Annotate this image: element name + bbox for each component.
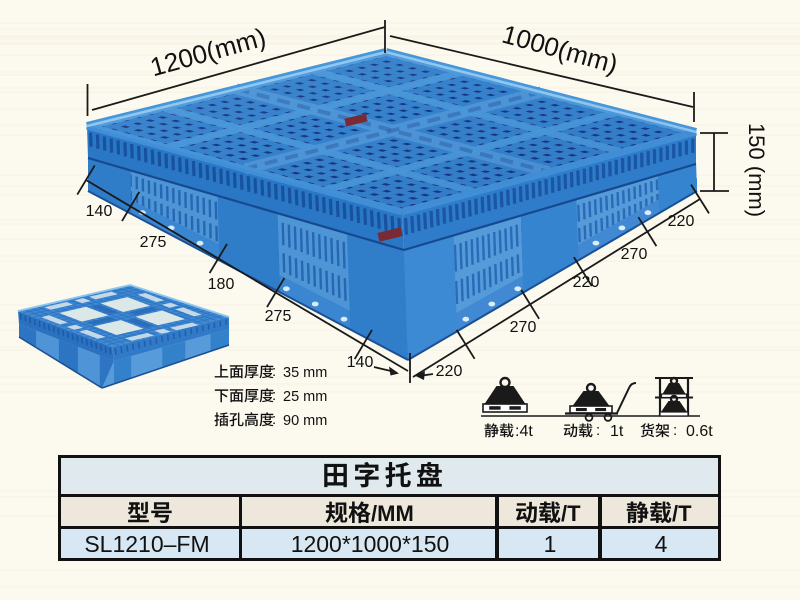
svg-text:275: 275: [140, 234, 167, 251]
svg-text:1200*1000*150: 1200*1000*150: [291, 531, 450, 557]
svg-text:4: 4: [655, 531, 668, 557]
svg-text:/T: /T: [561, 501, 581, 526]
svg-text:25 mm: 25 mm: [283, 389, 327, 405]
svg-text:90 mm: 90 mm: [283, 413, 327, 429]
svg-text:180: 180: [208, 276, 235, 293]
svg-text:/MM: /MM: [371, 501, 414, 526]
svg-text:140: 140: [347, 354, 374, 371]
svg-text:SL1210–FM: SL1210–FM: [84, 531, 209, 557]
svg-text:275: 275: [265, 308, 292, 325]
svg-text:140: 140: [86, 203, 113, 220]
svg-text::: :: [596, 422, 600, 439]
svg-text:220: 220: [436, 363, 463, 380]
svg-text::: :: [673, 422, 677, 439]
svg-text:220: 220: [573, 274, 600, 291]
svg-text::: :: [272, 411, 276, 428]
svg-text:/T: /T: [672, 501, 692, 526]
svg-text::: :: [272, 387, 276, 404]
svg-text:270: 270: [621, 246, 648, 263]
svg-text::: :: [272, 363, 276, 380]
svg-text:35 mm: 35 mm: [283, 365, 327, 381]
svg-text:150 (mm): 150 (mm): [744, 123, 769, 217]
svg-text:1t: 1t: [610, 423, 624, 440]
svg-text:270: 270: [510, 319, 537, 336]
svg-text:0.6t: 0.6t: [686, 423, 713, 440]
svg-text::4t: :4t: [515, 423, 533, 440]
svg-text:220: 220: [668, 213, 695, 230]
svg-text:1: 1: [544, 531, 557, 557]
